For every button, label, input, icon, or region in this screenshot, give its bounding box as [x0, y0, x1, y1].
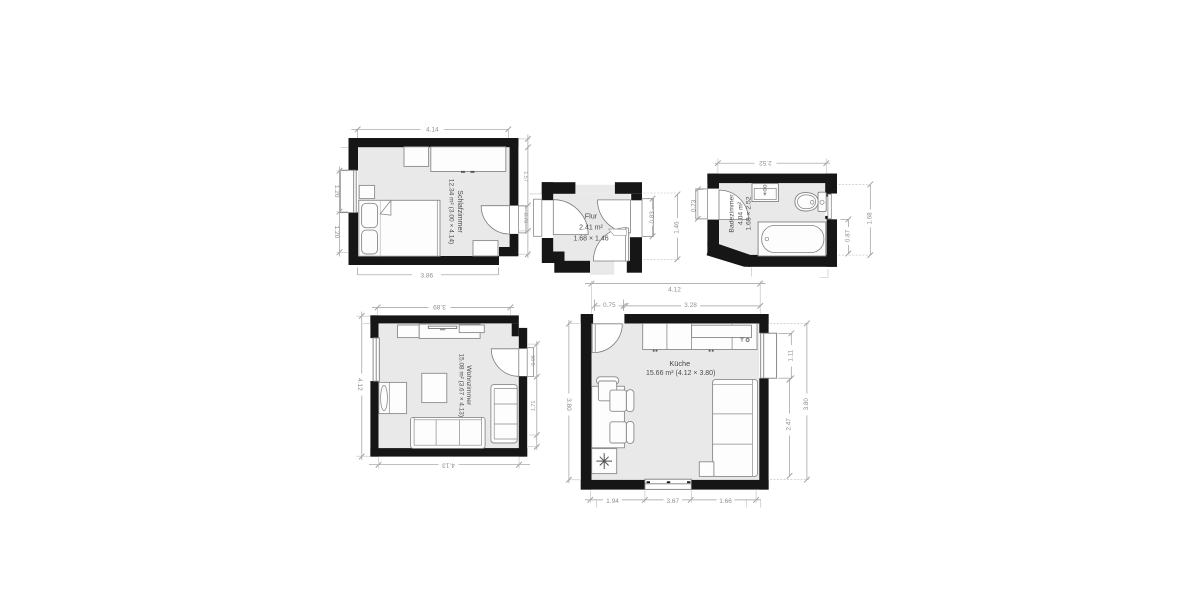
svg-text:1.66: 1.66 [719, 498, 732, 505]
svg-text:3.28: 3.28 [684, 302, 697, 309]
svg-text:4.14: 4.14 [426, 127, 439, 134]
svg-text:1.57: 1.57 [522, 171, 528, 182]
svg-text:4.13: 4.13 [442, 462, 455, 469]
svg-text:3.80: 3.80 [803, 398, 810, 411]
svg-text:3.89: 3.89 [433, 303, 446, 310]
svg-text:1.20: 1.20 [333, 185, 340, 198]
svg-text:0.83: 0.83 [649, 211, 656, 224]
svg-text:15.66 m² (4.12 × 3.80): 15.66 m² (4.12 × 3.80) [646, 370, 715, 377]
svg-text:3.67: 3.67 [666, 498, 679, 505]
svg-text:2.52: 2.52 [759, 159, 772, 166]
svg-text:12.34 m² (3.00 × 4.14): 12.34 m² (3.00 × 4.14) [448, 179, 455, 244]
svg-text:1.68: 1.68 [866, 212, 873, 225]
svg-text:3.80: 3.80 [565, 398, 572, 411]
svg-text:0.87: 0.87 [845, 229, 852, 242]
svg-text:2.41 m²: 2.41 m² [579, 224, 603, 231]
svg-text:4.04 m²: 4.04 m² [737, 201, 744, 225]
svg-text:Wohnzimmer: Wohnzimmer [465, 365, 472, 406]
svg-text:2.47: 2.47 [786, 418, 793, 431]
svg-text:1.94: 1.94 [606, 498, 619, 505]
svg-text:1.71: 1.71 [531, 401, 537, 412]
svg-text:1.11: 1.11 [788, 349, 795, 361]
svg-text:0.70: 0.70 [522, 213, 528, 224]
svg-text:Flur: Flur [585, 212, 598, 221]
svg-text:0.75: 0.75 [603, 302, 616, 309]
svg-text:Schlafzimmer: Schlafzimmer [456, 190, 463, 233]
svg-text:4.12: 4.12 [668, 287, 681, 294]
svg-text:15.08 m² (3.67 × 4.13): 15.08 m² (3.67 × 4.13) [458, 354, 465, 417]
svg-text:Badezimmer: Badezimmer [729, 194, 736, 233]
svg-text:1.46: 1.46 [673, 221, 680, 234]
svg-text:0.73: 0.73 [690, 199, 697, 212]
svg-text:1.68 × 1.46: 1.68 × 1.46 [573, 236, 608, 243]
svg-text:1.20: 1.20 [333, 226, 340, 239]
svg-text:0.96: 0.96 [531, 355, 537, 366]
svg-text:4.12: 4.12 [356, 378, 363, 391]
svg-text:3.86: 3.86 [420, 272, 433, 279]
svg-text:Küche: Küche [669, 359, 690, 368]
svg-text:1.68 × 2.52: 1.68 × 2.52 [745, 196, 752, 230]
